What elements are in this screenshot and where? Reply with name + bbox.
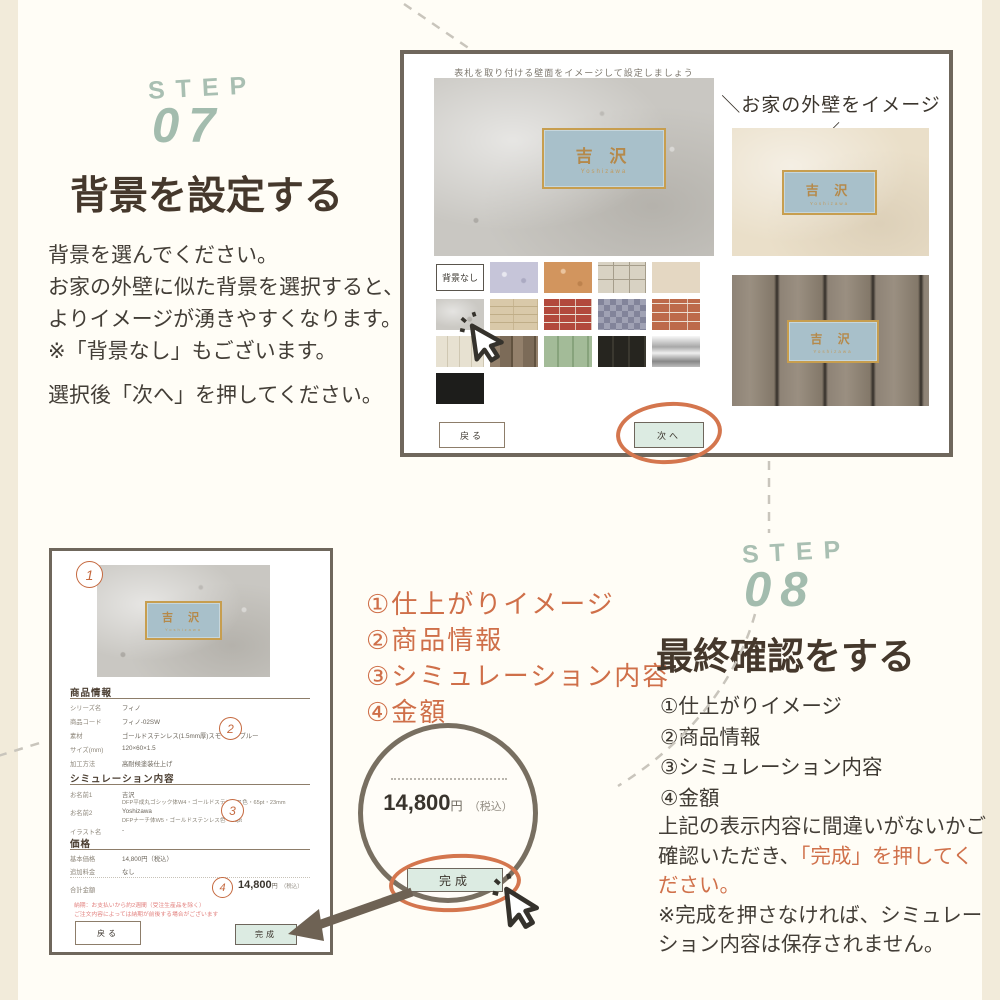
click-pointer-icon [456,307,514,371]
row-value: なし [122,867,312,876]
swatch-green-wood[interactable] [544,336,592,367]
row-value: フィノ-02SW [122,717,312,726]
swatch-checkered-gray[interactable] [598,299,646,330]
price-value: 14,800 [383,790,450,815]
step07-body-line: ※「背景なし」もございます。 [48,336,404,368]
callout-item: ②商品情報 [366,622,670,658]
row-label: サイズ(mm) [70,745,103,754]
section-rule [70,784,310,785]
dotted-separator [70,877,310,878]
swatch-lavender-stucco[interactable] [490,262,538,293]
row-label: 商品コード [70,717,101,726]
step07-action-line: 選択後「次へ」を押してください。 [48,380,383,412]
row-value: Yoshizawa [122,808,312,815]
total-price: 14,800円 （税込） [238,879,303,891]
step08-title: 最終確認をする [656,626,915,680]
nameplate-name: 吉 沢 [576,142,633,167]
step08-check-list: ①仕上がりイメージ ②商品情報 ③シミュレーション内容 ④金額 [660,692,883,814]
row-value: ゴールドステンレス(1.5mm厚)スモーキーブルー [122,731,312,740]
swatch-black-wood[interactable] [598,336,646,367]
nameplate-preview: 吉 沢 Yoshizawa [542,128,666,189]
swatch-light-beige[interactable] [652,262,700,293]
total-price-tax: （税込） [281,884,303,890]
swatch-black[interactable] [436,373,484,404]
total-price-value: 14,800 [238,879,272,891]
step08-paragraph: 上記の表示内容に間違いがないかご確認いただき、「完成」を押してください。 ※完成… [658,812,988,960]
delivery-note: 納期：お支払いから約2週間（受注生産品を除く） ご注文内容によっては納期が前後す… [74,902,218,920]
confirm-screenshot: 吉 沢 Yoshizawa 1 商品情報 シリーズ名 フィノ 商品コード フィノ… [49,548,333,955]
note-line: 納期：お支払いから約2週間（受注生産品を除く） [74,902,218,911]
nameplate-name: 吉 沢 [810,330,855,347]
finished-preview-image: 吉 沢 Yoshizawa [97,565,270,677]
badge-2: 2 [219,717,242,740]
section-rule [70,698,310,699]
price-unit: 円 [451,799,463,813]
callout-list: ①仕上がりイメージ ②商品情報 ③シミュレーション内容 ④金額 [366,586,670,730]
nameplate-example-2: 吉 沢 Yoshizawa [787,320,879,363]
swatch-red-brick[interactable] [544,299,592,330]
dashed-line [404,4,470,49]
callout-item: ③シミュレーション内容 [366,658,670,694]
complete-button[interactable]: 完成 [235,924,297,945]
callout-item: ①仕上がりイメージ [366,586,670,622]
badge-4: 4 [212,877,233,898]
sim-section-title: シミュレーション内容 [70,771,175,785]
nameplate-example-1: 吉 沢 Yoshizawa [782,170,877,215]
swatch-silver-metal[interactable] [652,336,700,367]
nameplate-romaji: Yoshizawa [165,627,202,632]
price-tax: （税込） [469,801,513,813]
row-value: - [122,827,312,834]
total-price-unit: 円 [272,884,278,890]
step07-body-line: 背景を選んでください。 [48,240,404,272]
row-detail: DFP平成丸ゴシック体W4・ゴールドステンレス色・65pt・23mm [122,798,317,806]
badge-1: 1 [76,561,103,588]
step08-number: 08 [744,562,817,618]
step07-number: 07 [152,98,225,154]
magnified-total-price: 14,800円 （税込） [363,790,533,816]
check-item: ③シミュレーション内容 [660,753,883,784]
wall-preview-image: 吉 沢 Yoshizawa [434,78,714,256]
check-item: ②商品情報 [660,723,883,754]
step07-body-line: お家の外壁に似た背景を選択すると、 [48,272,404,304]
nameplate-confirm: 吉 沢 Yoshizawa [145,601,222,640]
price-section-title: 価格 [70,836,91,850]
check-item: ④金額 [660,784,883,815]
row-label: 基本価格 [70,854,95,863]
callout-item: ④金額 [366,694,670,730]
back-button[interactable]: 戻る [439,422,505,448]
example-wall-stucco: 吉 沢 Yoshizawa [732,128,929,256]
nameplate-romaji: Yoshizawa [810,201,849,206]
nameplate-romaji: Yoshizawa [813,349,852,354]
nameplate-name: 吉 沢 [162,609,205,625]
swatch-beige-tile[interactable] [598,262,646,293]
check-item: ①仕上がりイメージ [660,692,883,723]
row-label: 加工方法 [70,759,95,768]
total-label: 合計金額 [70,885,95,894]
row-label: シリーズ名 [70,703,101,712]
click-pointer-icon [489,869,547,936]
row-value: 高耐候塗装仕上げ [122,759,312,768]
step07-body: 背景を選んでください。 お家の外壁に似た背景を選択すると、 よりイメージが湧きや… [48,240,404,368]
row-label: 素材 [70,731,83,740]
row-detail: DFPナーチ体W5・ゴールドステンレス色・26pt [122,816,317,824]
page: STEP 07 背景を設定する 背景を選んでください。 お家の外壁に似た背景を選… [0,0,1000,1000]
row-label: お名前2 [70,808,92,817]
row-value: フィノ [122,703,312,712]
swatch-orange-stucco[interactable] [544,262,592,293]
example-wall-wood: 吉 沢 Yoshizawa [732,275,929,406]
nameplate-romaji: Yoshizawa [581,169,627,175]
step07-title: 背景を設定する [70,165,343,221]
row-label: 追加料金 [70,867,95,876]
section-rule [70,849,310,850]
row-label: お名前1 [70,790,92,799]
simulator-screenshot: 表札を取り付ける壁面をイメージして設定しましょう 吉 沢 Yoshizawa 背… [400,50,953,457]
left-edge-strip [0,0,18,1000]
next-button-highlight-circle [614,398,724,467]
row-value: 14,800円（税込） [122,854,312,863]
dotted-separator [391,778,507,780]
row-label: イラスト名 [70,827,101,836]
swatch-no-background[interactable]: 背景なし [436,264,484,291]
step07-body-line: よりイメージが湧きやすくなります。 [48,304,404,336]
back-button-confirm[interactable]: 戻る [75,921,141,945]
row-value: 120×60×1.5 [122,745,312,752]
product-section-title: 商品情報 [70,685,112,699]
paragraph-text: ※完成を押さなければ、シミュレーション内容は保存されません。 [658,904,982,957]
nameplate-name: 吉 沢 [806,180,854,199]
badge-3: 3 [221,799,244,822]
note-line: ご注文内容によっては納期が前後する場合がございます [74,911,218,920]
swatch-orange-brick[interactable] [652,299,700,330]
